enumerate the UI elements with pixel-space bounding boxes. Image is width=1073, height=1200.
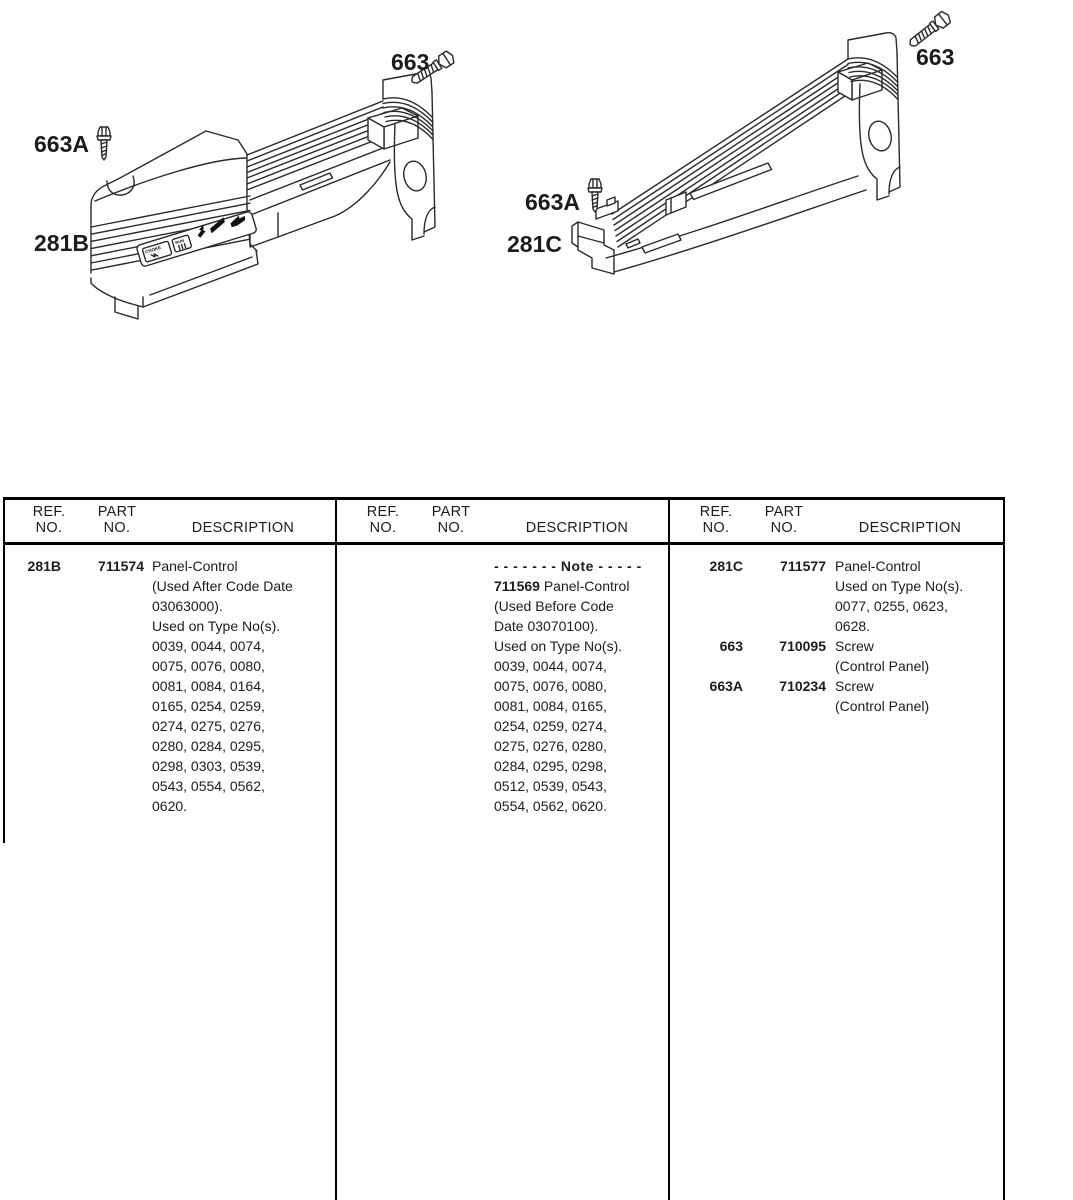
description-line: Panel-Control	[152, 556, 293, 576]
description-line: 0284, 0295, 0298,	[494, 756, 622, 776]
ref-no-663a: 663A	[686, 676, 743, 696]
description-line: (Used Before Code	[494, 596, 622, 616]
parts-manual-page: CHOKE RUN	[0, 0, 1073, 1200]
description-line: Screw	[835, 676, 929, 696]
header-ref-no: REF. NO.	[690, 504, 742, 536]
header-no: NO.	[357, 520, 409, 536]
left-end-flange	[383, 73, 435, 240]
description-line: Used on Type No(s).	[835, 576, 963, 596]
description-line: 0165, 0254, 0259,	[152, 696, 293, 716]
part-no-711577: 711577	[748, 556, 826, 576]
ref-no-663: 663	[686, 636, 743, 656]
description-710095: Screw(Control Panel)	[835, 636, 929, 676]
diagram-left-panel-assembly: CHOKE RUN	[80, 35, 470, 320]
header-no: NO.	[423, 520, 479, 536]
note-first-line-rest: Panel-Control	[540, 578, 630, 594]
description-line: 0075, 0076, 0080,	[494, 676, 622, 696]
description-line: Date 03070100).	[494, 616, 622, 636]
header-no: NO.	[89, 520, 145, 536]
header-ref: REF.	[23, 504, 75, 520]
description-line: 03063000).	[152, 596, 293, 616]
label-left-281b: 281B	[34, 230, 89, 257]
header-ref: REF.	[690, 504, 742, 520]
label-right-281c: 281C	[507, 231, 562, 258]
header-part: PART	[423, 504, 479, 520]
description-line: 0628.	[835, 616, 963, 636]
description-line: 0275, 0276, 0280,	[494, 736, 622, 756]
table-top-rule	[3, 497, 1004, 500]
right-end-flange	[848, 33, 900, 200]
note-title: - - - - - - - Note - - - - -	[494, 556, 642, 576]
left-cover-281B: CHOKE RUN	[91, 131, 258, 319]
part-no-710234: 710234	[748, 676, 826, 696]
header-part-no: PART NO.	[89, 504, 145, 536]
header-part: PART	[89, 504, 145, 520]
header-ref: REF.	[357, 504, 409, 520]
table-header-rule	[3, 542, 1004, 545]
description-line: (Control Panel)	[835, 696, 929, 716]
description-line: Used on Type No(s).	[494, 636, 622, 656]
label-right-663: 663	[916, 44, 954, 71]
header-ref-no: REF. NO.	[357, 504, 409, 536]
description-line: 0298, 0303, 0539,	[152, 756, 293, 776]
header-ref-no: REF. NO.	[23, 504, 75, 536]
description-line: 0554, 0562, 0620.	[494, 796, 622, 816]
description-711574: Panel-Control(Used After Code Date030630…	[152, 556, 293, 816]
description-line: 0081, 0084, 0164,	[152, 676, 293, 696]
part-no-711574: 711574	[66, 556, 144, 576]
label-left-663: 663	[391, 49, 429, 76]
description-line: 0512, 0539, 0543,	[494, 776, 622, 796]
description-line: 0039, 0044, 0074,	[494, 656, 622, 676]
header-part-no: PART NO.	[756, 504, 812, 536]
description-711569: (Used Before CodeDate 03070100).Used on …	[494, 596, 622, 816]
header-description: DESCRIPTION	[810, 520, 1010, 536]
description-line: 0077, 0255, 0623,	[835, 596, 963, 616]
header-part: PART	[756, 504, 812, 520]
description-line: 0280, 0284, 0295,	[152, 736, 293, 756]
description-line: 0039, 0044, 0074,	[152, 636, 293, 656]
right-rail	[606, 59, 866, 272]
description-line: 0543, 0554, 0562,	[152, 776, 293, 796]
header-no: NO.	[23, 520, 75, 536]
description-line: 0075, 0076, 0080,	[152, 656, 293, 676]
ref-no-281b: 281B	[4, 556, 61, 576]
table-left-border	[3, 497, 5, 843]
header-no: NO.	[690, 520, 742, 536]
description-line: (Used After Code Date	[152, 576, 293, 596]
description-line: 0081, 0084, 0165,	[494, 696, 622, 716]
diagram-right-panel-assembly	[505, 5, 965, 290]
table-divider-2	[668, 497, 670, 1200]
description-line: 0254, 0259, 0274,	[494, 716, 622, 736]
label-right-663a: 663A	[525, 189, 580, 216]
ref-no-281c: 281C	[686, 556, 743, 576]
description-line: 0274, 0275, 0276,	[152, 716, 293, 736]
description-line: (Control Panel)	[835, 656, 929, 676]
description-line: 0620.	[152, 796, 293, 816]
label-left-663a: 663A	[34, 131, 89, 158]
screw-663a-icon	[97, 127, 111, 160]
table-divider-1	[335, 497, 337, 1200]
description-line: Used on Type No(s).	[152, 616, 293, 636]
description-711577: Panel-ControlUsed on Type No(s).0077, 02…	[835, 556, 963, 636]
header-description: DESCRIPTION	[477, 520, 677, 536]
description-710234: Screw(Control Panel)	[835, 676, 929, 716]
header-description: DESCRIPTION	[143, 520, 343, 536]
header-part-no: PART NO.	[423, 504, 479, 536]
part-no-710095: 710095	[748, 636, 826, 656]
description-line: Panel-Control	[835, 556, 963, 576]
table-right-border	[1003, 497, 1005, 1200]
part-no-711569: 711569	[494, 578, 540, 594]
header-no: NO.	[756, 520, 812, 536]
description-line: Screw	[835, 636, 929, 656]
note-first-line: 711569 Panel-Control	[494, 576, 629, 596]
